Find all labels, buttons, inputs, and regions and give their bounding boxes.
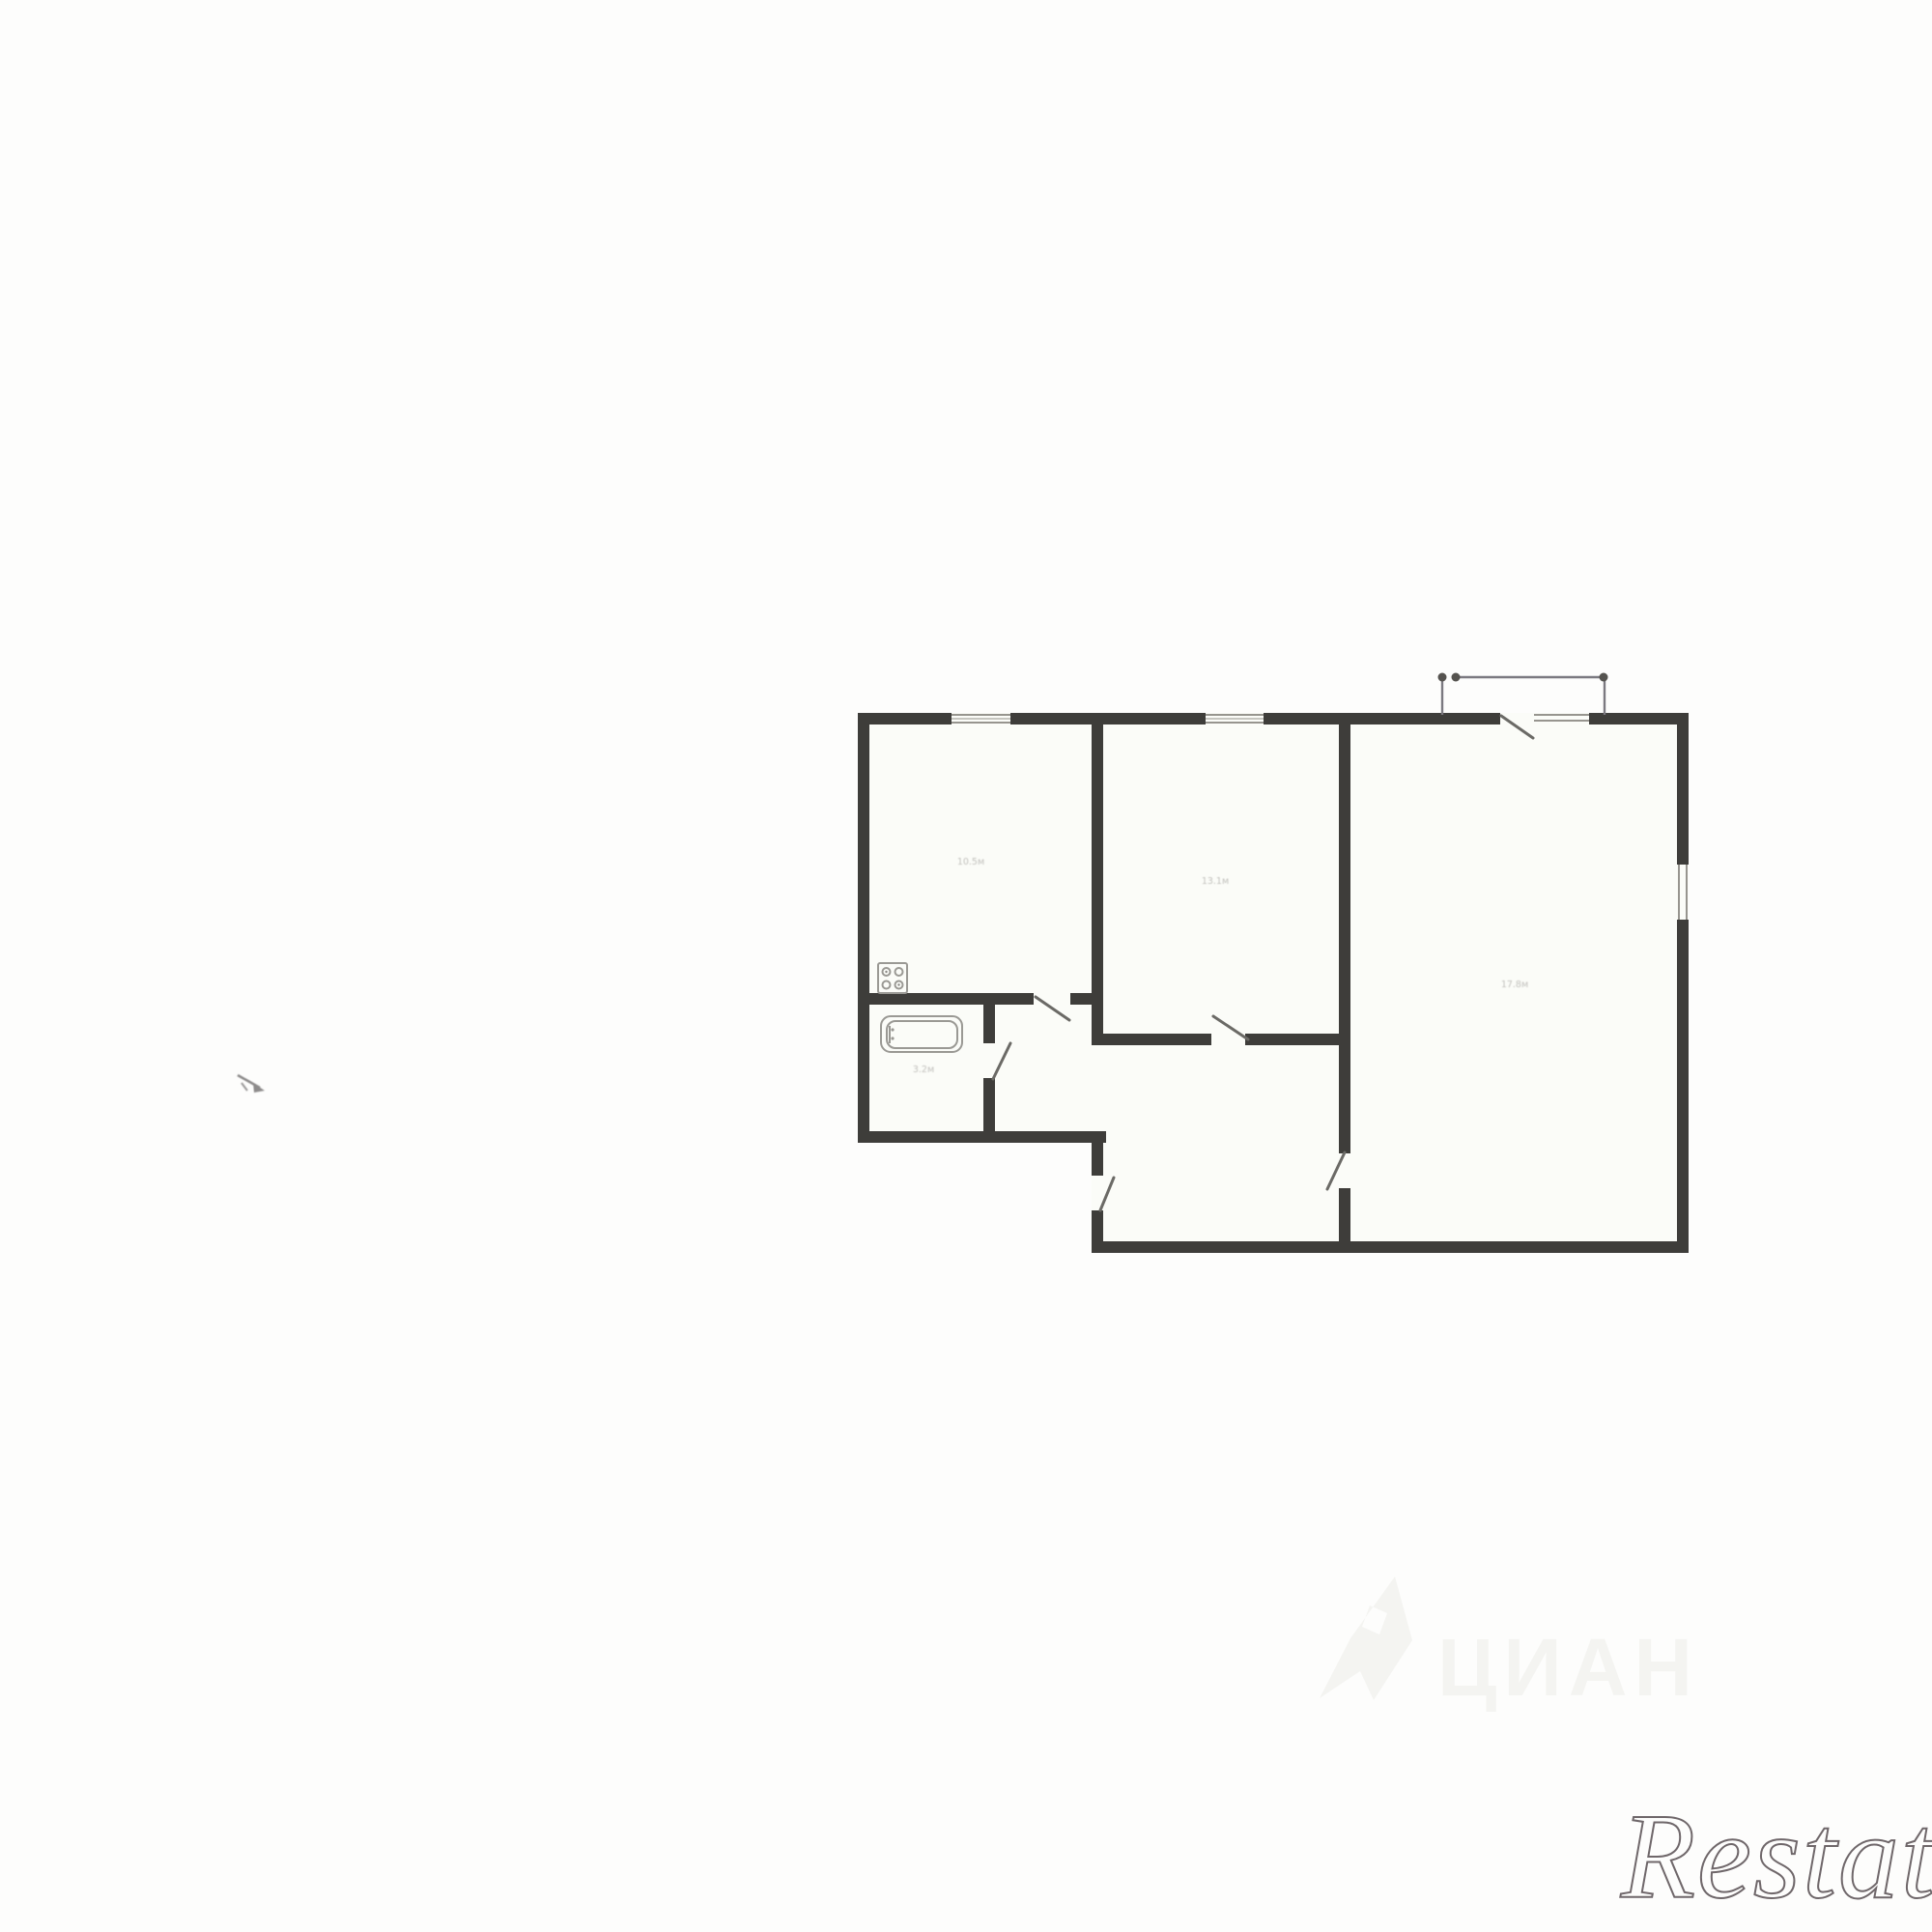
room3-area-label: 17.8м: [1501, 980, 1528, 990]
wall-segment: [1339, 719, 1350, 1153]
restate-watermark-text: Restate: [1621, 1797, 1932, 1918]
wall-segment: [1677, 713, 1689, 865]
wall-segment: [1092, 1131, 1103, 1176]
wall-segment: [983, 1003, 995, 1043]
kitchen-area-label: 10.5м: [957, 857, 984, 867]
bathroom-area-label: 3.2м: [913, 1065, 934, 1075]
wall-segment: [1092, 1034, 1211, 1045]
wall-segment: [1264, 713, 1500, 724]
wall-segment: [858, 1131, 1106, 1143]
north-arrow-icon: [238, 1075, 265, 1093]
wall-segment: [983, 1078, 995, 1133]
wall-segment: [1092, 1210, 1103, 1253]
room2-area-label: 13.1м: [1202, 876, 1229, 887]
wall-segment: [858, 713, 869, 1143]
wall-segment: [1070, 993, 1094, 1005]
balcony-railing: [1438, 673, 1608, 716]
wall-segment: [1092, 719, 1103, 1037]
wall-segment: [858, 713, 952, 724]
floorplan-page: 10.5м 13.1м 17.8м 3.2м ЦИАН Restate: [0, 0, 1932, 1932]
apartment-floor: [858, 713, 1689, 1253]
wall-segment: [1245, 1034, 1350, 1045]
wall-segment: [1677, 920, 1689, 1253]
wall-segment: [1092, 1241, 1689, 1253]
floor-plan: 10.5м 13.1м 17.8м 3.2м: [0, 0, 1932, 1932]
wall-segment: [858, 993, 1034, 1005]
wall-segment: [1339, 1188, 1350, 1253]
wall-segment: [1010, 713, 1206, 724]
